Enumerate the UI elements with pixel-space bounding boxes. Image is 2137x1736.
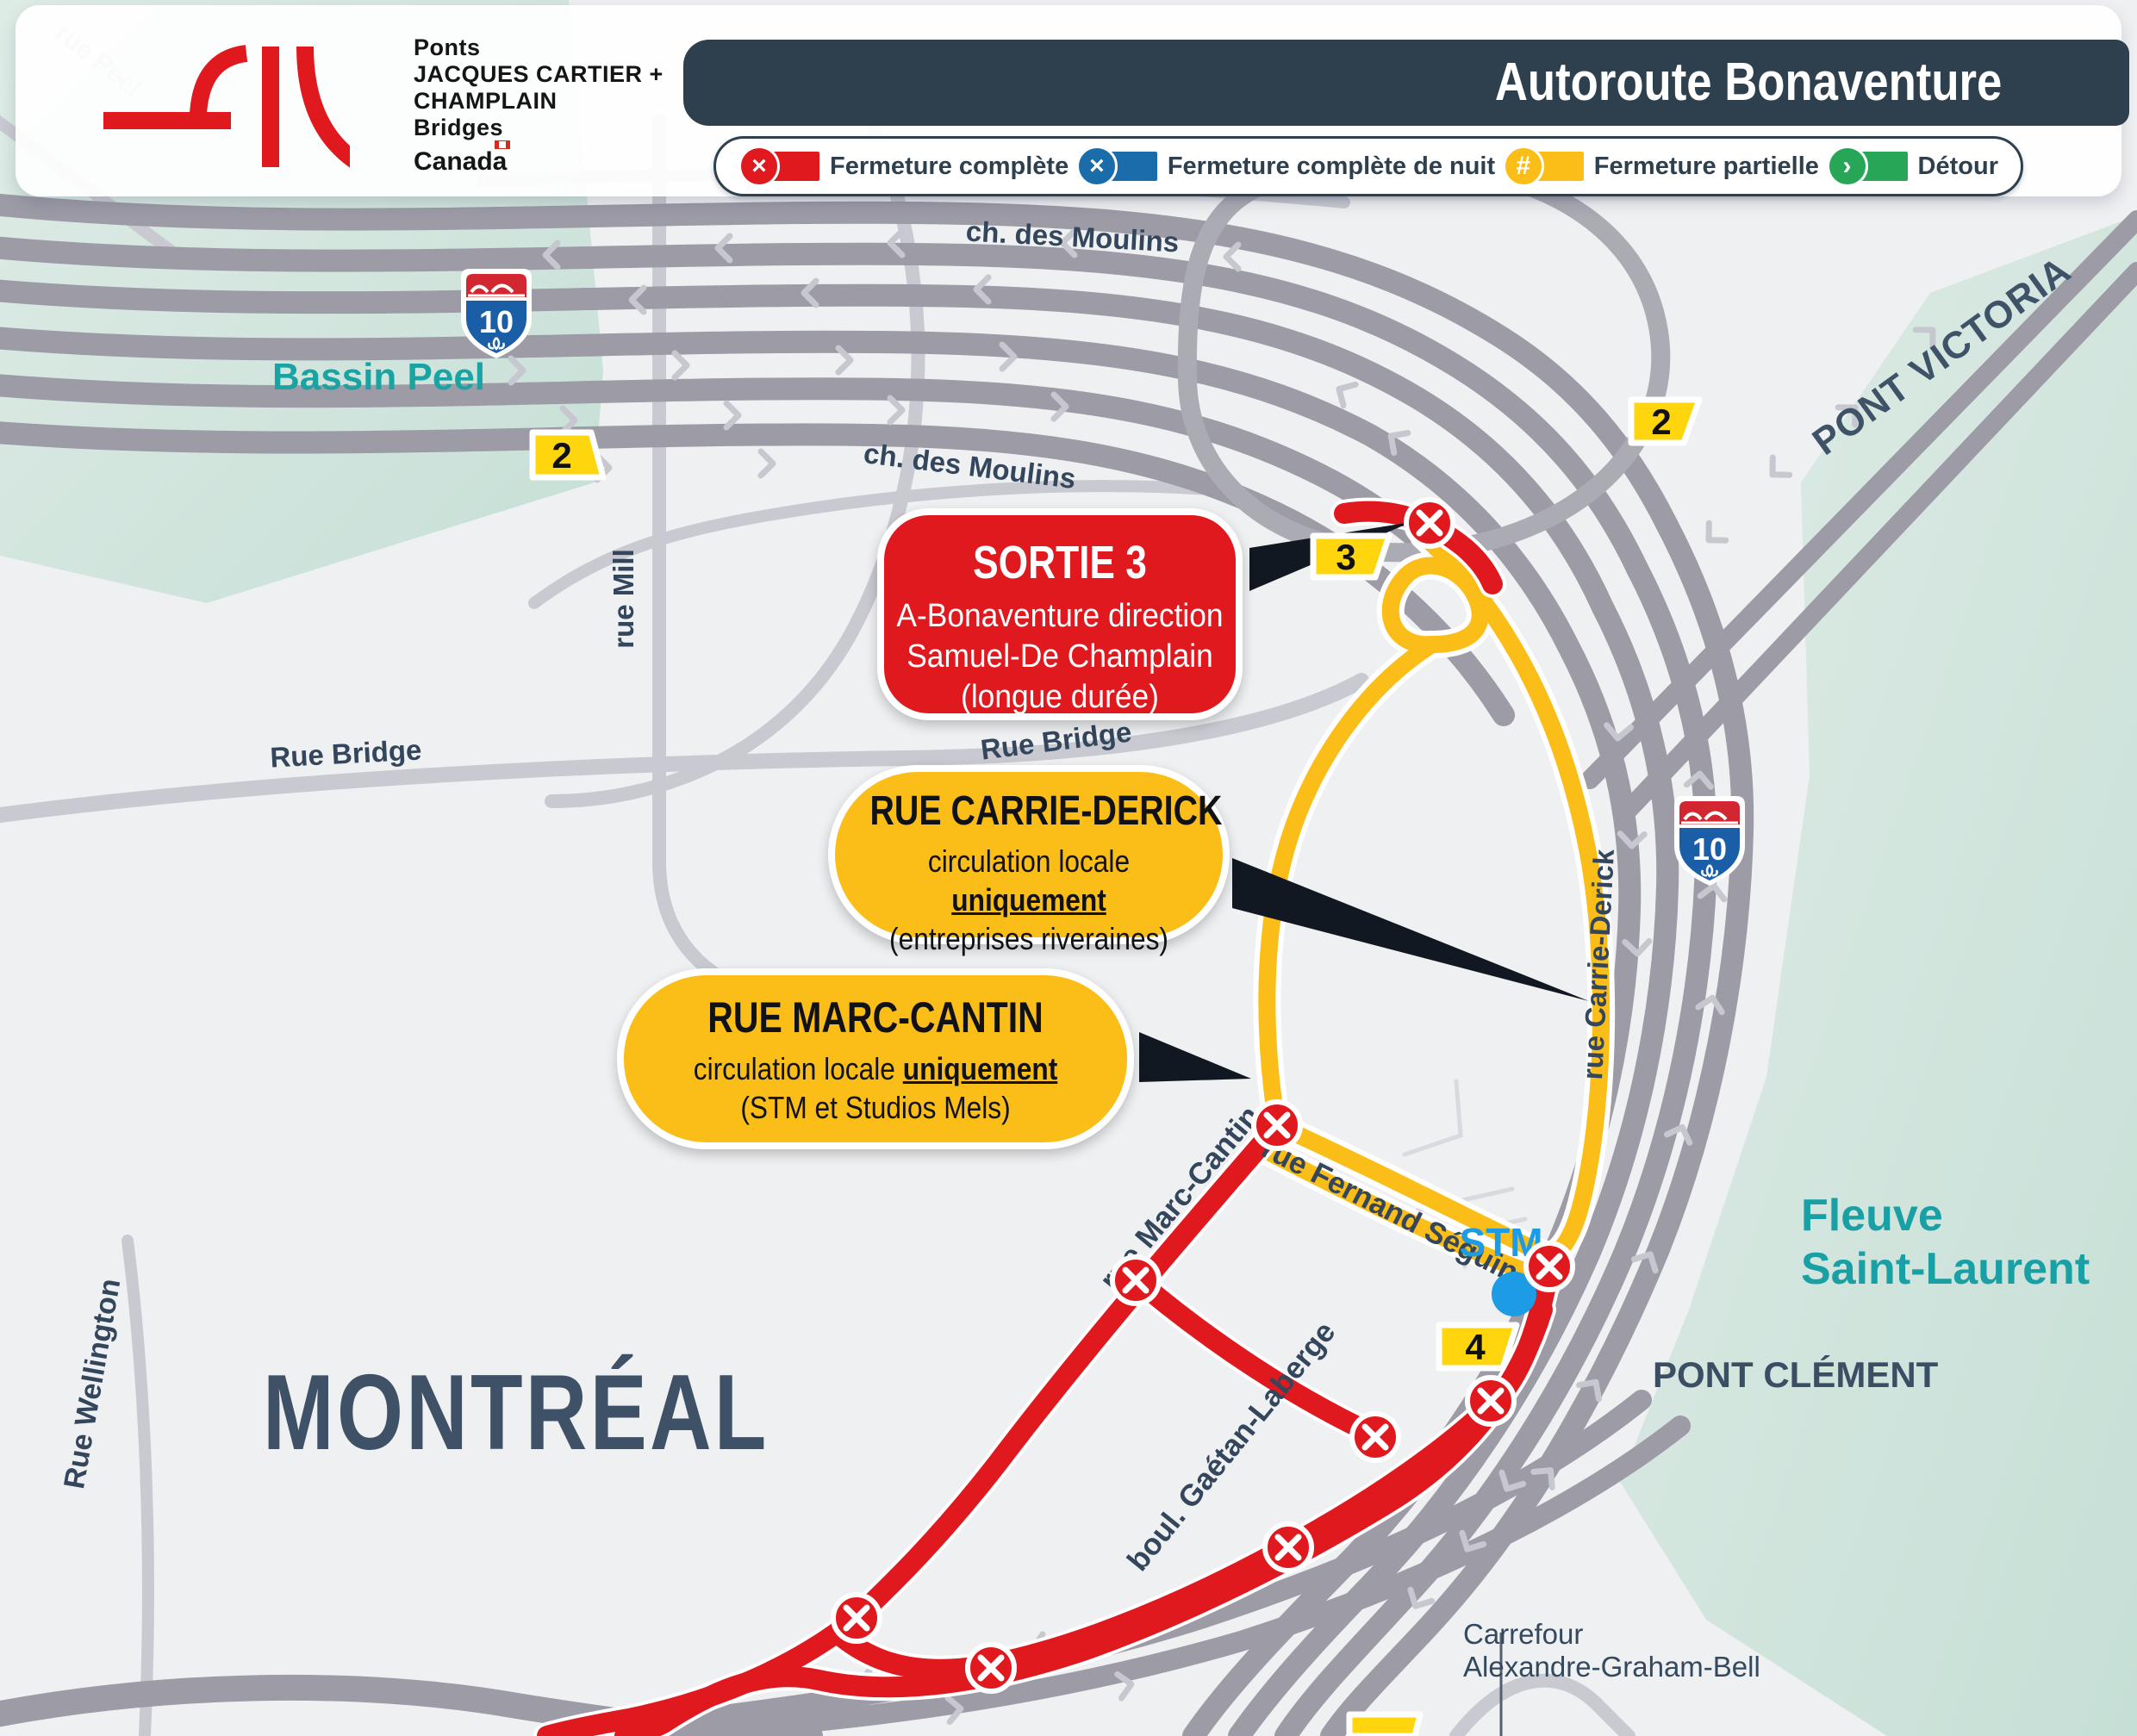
label-carrefour-line2: Alexandre-Graham-Bell bbox=[1463, 1651, 1760, 1683]
callout-title: SORTIE 3 bbox=[916, 536, 1205, 589]
callout-line: (STM et Studios Mels) bbox=[654, 1088, 1097, 1127]
shield-route-number: 10 bbox=[1692, 831, 1727, 867]
callout-body: circulation locale uniquement (entrepris… bbox=[858, 842, 1199, 958]
closure-x-icon bbox=[1112, 1257, 1159, 1304]
closure-x-icon bbox=[1526, 1243, 1573, 1290]
callout-line: (longue durée) bbox=[896, 677, 1223, 718]
zone-badge-partial bbox=[1349, 1714, 1420, 1736]
label-carrefour-line1: Carrefour bbox=[1463, 1618, 1583, 1650]
label-bassin-peel: Bassin Peel bbox=[272, 356, 485, 398]
callout-line: Samuel-De Champlain bbox=[896, 637, 1223, 677]
callout-title: RUE CARRIE-DERICK bbox=[870, 787, 1188, 835]
header: Ponts JACQUES CARTIER + CHAMPLAIN Bridge… bbox=[16, 5, 2121, 196]
closure-x-icon bbox=[1254, 1102, 1300, 1148]
callout-line: circulation locale uniquement bbox=[858, 842, 1199, 919]
zone-badge-3-number: 3 bbox=[1336, 537, 1355, 577]
label-fleuve-line1: Fleuve bbox=[1801, 1191, 1943, 1241]
legend-label: Fermeture complète de nuit bbox=[1168, 152, 1495, 181]
zone-badge-2-left-number: 2 bbox=[551, 435, 571, 476]
brand-line: CHAMPLAIN bbox=[414, 88, 664, 115]
zone-badge-4-number: 4 bbox=[1465, 1327, 1486, 1367]
label-pont-clement: PONT CLÉMENT bbox=[1653, 1354, 1939, 1395]
closure-x-icon bbox=[968, 1645, 1014, 1691]
legend-item-fermeture-complete: × Fermeture complète bbox=[738, 146, 1068, 187]
callout-rue-marc-cantin: RUE MARC-CANTIN circulation locale uniqu… bbox=[617, 968, 1134, 1149]
shield-route-number: 10 bbox=[479, 304, 514, 339]
closure-x-icon bbox=[833, 1595, 880, 1641]
legend-item-fermeture-partielle: # Fermeture partielle bbox=[1503, 146, 1819, 187]
brand-line: JACQUES CARTIER + bbox=[414, 61, 664, 88]
brand-block: Ponts JACQUES CARTIER + CHAMPLAIN Bridge… bbox=[414, 34, 664, 176]
callout-line: circulation locale uniquement bbox=[654, 1049, 1097, 1088]
label-montreal: MONTRÉAL bbox=[263, 1352, 769, 1472]
partial-closure-icon: # bbox=[1503, 146, 1586, 187]
closure-x-icon bbox=[1265, 1524, 1311, 1571]
canada-flag-icon bbox=[495, 140, 510, 149]
title-bar: Autoroute Bonaventure bbox=[683, 40, 2129, 126]
canada-wordmark: Canada bbox=[414, 148, 507, 175]
closure-x-icon bbox=[1352, 1414, 1399, 1460]
brand-line: Ponts bbox=[414, 34, 664, 61]
brand-line: Bridges bbox=[414, 115, 664, 141]
label-fleuve-line2: Saint-Laurent bbox=[1801, 1244, 2090, 1294]
legend-label: Fermeture complète bbox=[830, 152, 1068, 181]
legend-label: Fermeture partielle bbox=[1594, 152, 1819, 181]
full-closure-icon: × bbox=[738, 146, 821, 187]
zone-badge-2-right-number: 2 bbox=[1651, 401, 1671, 442]
legend-label: Détour bbox=[1918, 152, 1998, 181]
callout-title: RUE MARC-CANTIN bbox=[670, 992, 1082, 1042]
legend-item-fermeture-nuit: × Fermeture complète de nuit bbox=[1076, 146, 1495, 187]
canada-wordmark-text: Canada bbox=[414, 147, 507, 176]
closure-x-icon bbox=[1406, 500, 1453, 546]
callout-body: circulation locale uniquement (STM et St… bbox=[654, 1049, 1097, 1127]
bridges-logo-icon bbox=[91, 28, 350, 183]
closure-x-icon bbox=[1467, 1378, 1514, 1424]
page-title: Autoroute Bonaventure bbox=[1494, 40, 2002, 126]
legend: × Fermeture complète × Fermeture complèt… bbox=[713, 136, 2023, 196]
callout-line: A-Bonaventure direction bbox=[896, 596, 1223, 637]
label-rue-mill: rue Mill bbox=[607, 549, 639, 649]
callout-rue-carrie-derick: RUE CARRIE-DERICK circulation locale uni… bbox=[828, 765, 1230, 944]
callout-sortie-3: SORTIE 3 A-Bonaventure direction Samuel-… bbox=[877, 508, 1243, 720]
night-closure-icon: × bbox=[1076, 146, 1159, 187]
legend-item-detour: › Détour bbox=[1827, 146, 1998, 187]
callout-body: A-Bonaventure direction Samuel-De Champl… bbox=[896, 596, 1223, 718]
callout-line: (entreprises riveraines) bbox=[858, 919, 1199, 958]
detour-icon: › bbox=[1827, 146, 1910, 187]
